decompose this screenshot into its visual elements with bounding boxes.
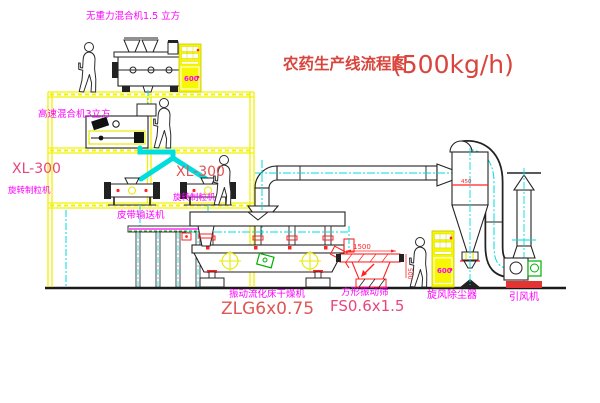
fluid-bed-dryer — [186, 212, 350, 287]
diagram-title-capacity: (500kg/h) — [392, 50, 514, 79]
cad-flow-diagram: 无重力混合机1.5 立方 高速混合机3立方 XL-300 旋转制粒机 XL-30… — [0, 0, 600, 403]
label-belt-conveyor: 皮带输送机 — [117, 209, 165, 221]
cabinet-bottom-marking: 600 — [437, 267, 452, 275]
worker-figure-floor3 — [214, 156, 231, 206]
label-cyclone: 旋风除尘器 — [427, 288, 477, 301]
label-screen-model: FS0.6x1.5 — [330, 297, 404, 315]
worker-figure-roof — [79, 43, 96, 93]
label-dryer-model: ZLG6x0.75 — [221, 299, 314, 319]
cyclone-separator — [450, 141, 488, 288]
label-granulator-right-name: 旋转制粒机 — [173, 192, 216, 203]
label-gravity-mixer: 无重力混合机1.5 立方 — [86, 10, 180, 22]
vibrating-screen — [336, 226, 406, 287]
label-granulator-right-model: XL-300 — [176, 164, 225, 180]
dim-screen-width: 1500 — [353, 243, 371, 251]
label-high-speed-mixer: 高速混合机3立方 — [38, 108, 111, 120]
control-cabinet-top — [179, 44, 201, 92]
label-granulator-left-name: 旋转制粒机 — [8, 185, 51, 196]
control-cabinet-bottom — [432, 231, 454, 287]
dim-cyclone: 450 — [461, 179, 472, 185]
diagram-title: 农药生产线流程图 — [282, 54, 407, 73]
dim-screen-height: 500 — [406, 268, 413, 280]
label-granulator-left-model: XL-300 — [12, 161, 61, 177]
label-fan: 引风机 — [509, 290, 539, 303]
worker-figure-ground — [410, 238, 427, 288]
cabinet-top-marking: 600 — [184, 75, 199, 83]
induced-draft-fan — [504, 258, 542, 288]
